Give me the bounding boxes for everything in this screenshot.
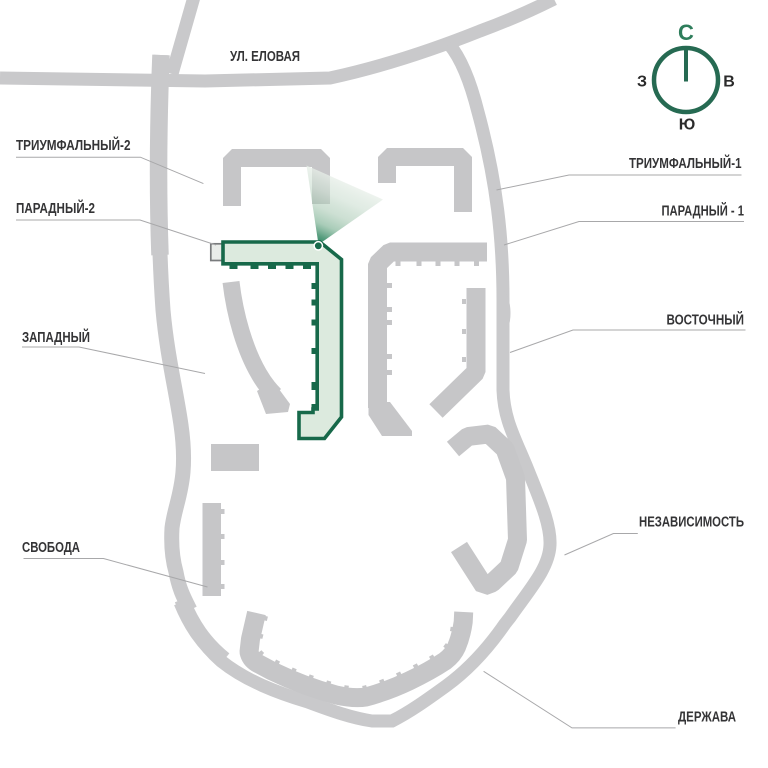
svg-text:ТРИУМФАЛЬНЫЙ-2: ТРИУМФАЛЬНЫЙ-2: [16, 136, 131, 154]
svg-text:ПАРАДНЫЙ-2: ПАРАДНЫЙ-2: [16, 199, 95, 217]
svg-text:НЕЗАВИСИМОСТЬ: НЕЗАВИСИМОСТЬ: [639, 515, 744, 531]
svg-text:СВОБОДА: СВОБОДА: [22, 540, 80, 556]
svg-text:УЛ. ЕЛОВАЯ: УЛ. ЕЛОВАЯ: [230, 49, 300, 65]
svg-text:ВОСТОЧНЫЙ: ВОСТОЧНЫЙ: [667, 311, 745, 329]
svg-text:С: С: [678, 20, 694, 45]
svg-text:В: В: [723, 74, 735, 91]
svg-text:Ю: Ю: [679, 117, 696, 134]
svg-text:ДЕРЖАВА: ДЕРЖАВА: [678, 710, 736, 726]
svg-text:ЗАПАДНЫЙ: ЗАПАДНЫЙ: [22, 328, 90, 346]
svg-text:ТРИУМФАЛЬНЫЙ-1: ТРИУМФАЛЬНЫЙ-1: [629, 154, 742, 172]
svg-text:ПАРАДНЫЙ - 1: ПАРАДНЫЙ - 1: [662, 202, 745, 220]
svg-text:З: З: [637, 74, 647, 91]
